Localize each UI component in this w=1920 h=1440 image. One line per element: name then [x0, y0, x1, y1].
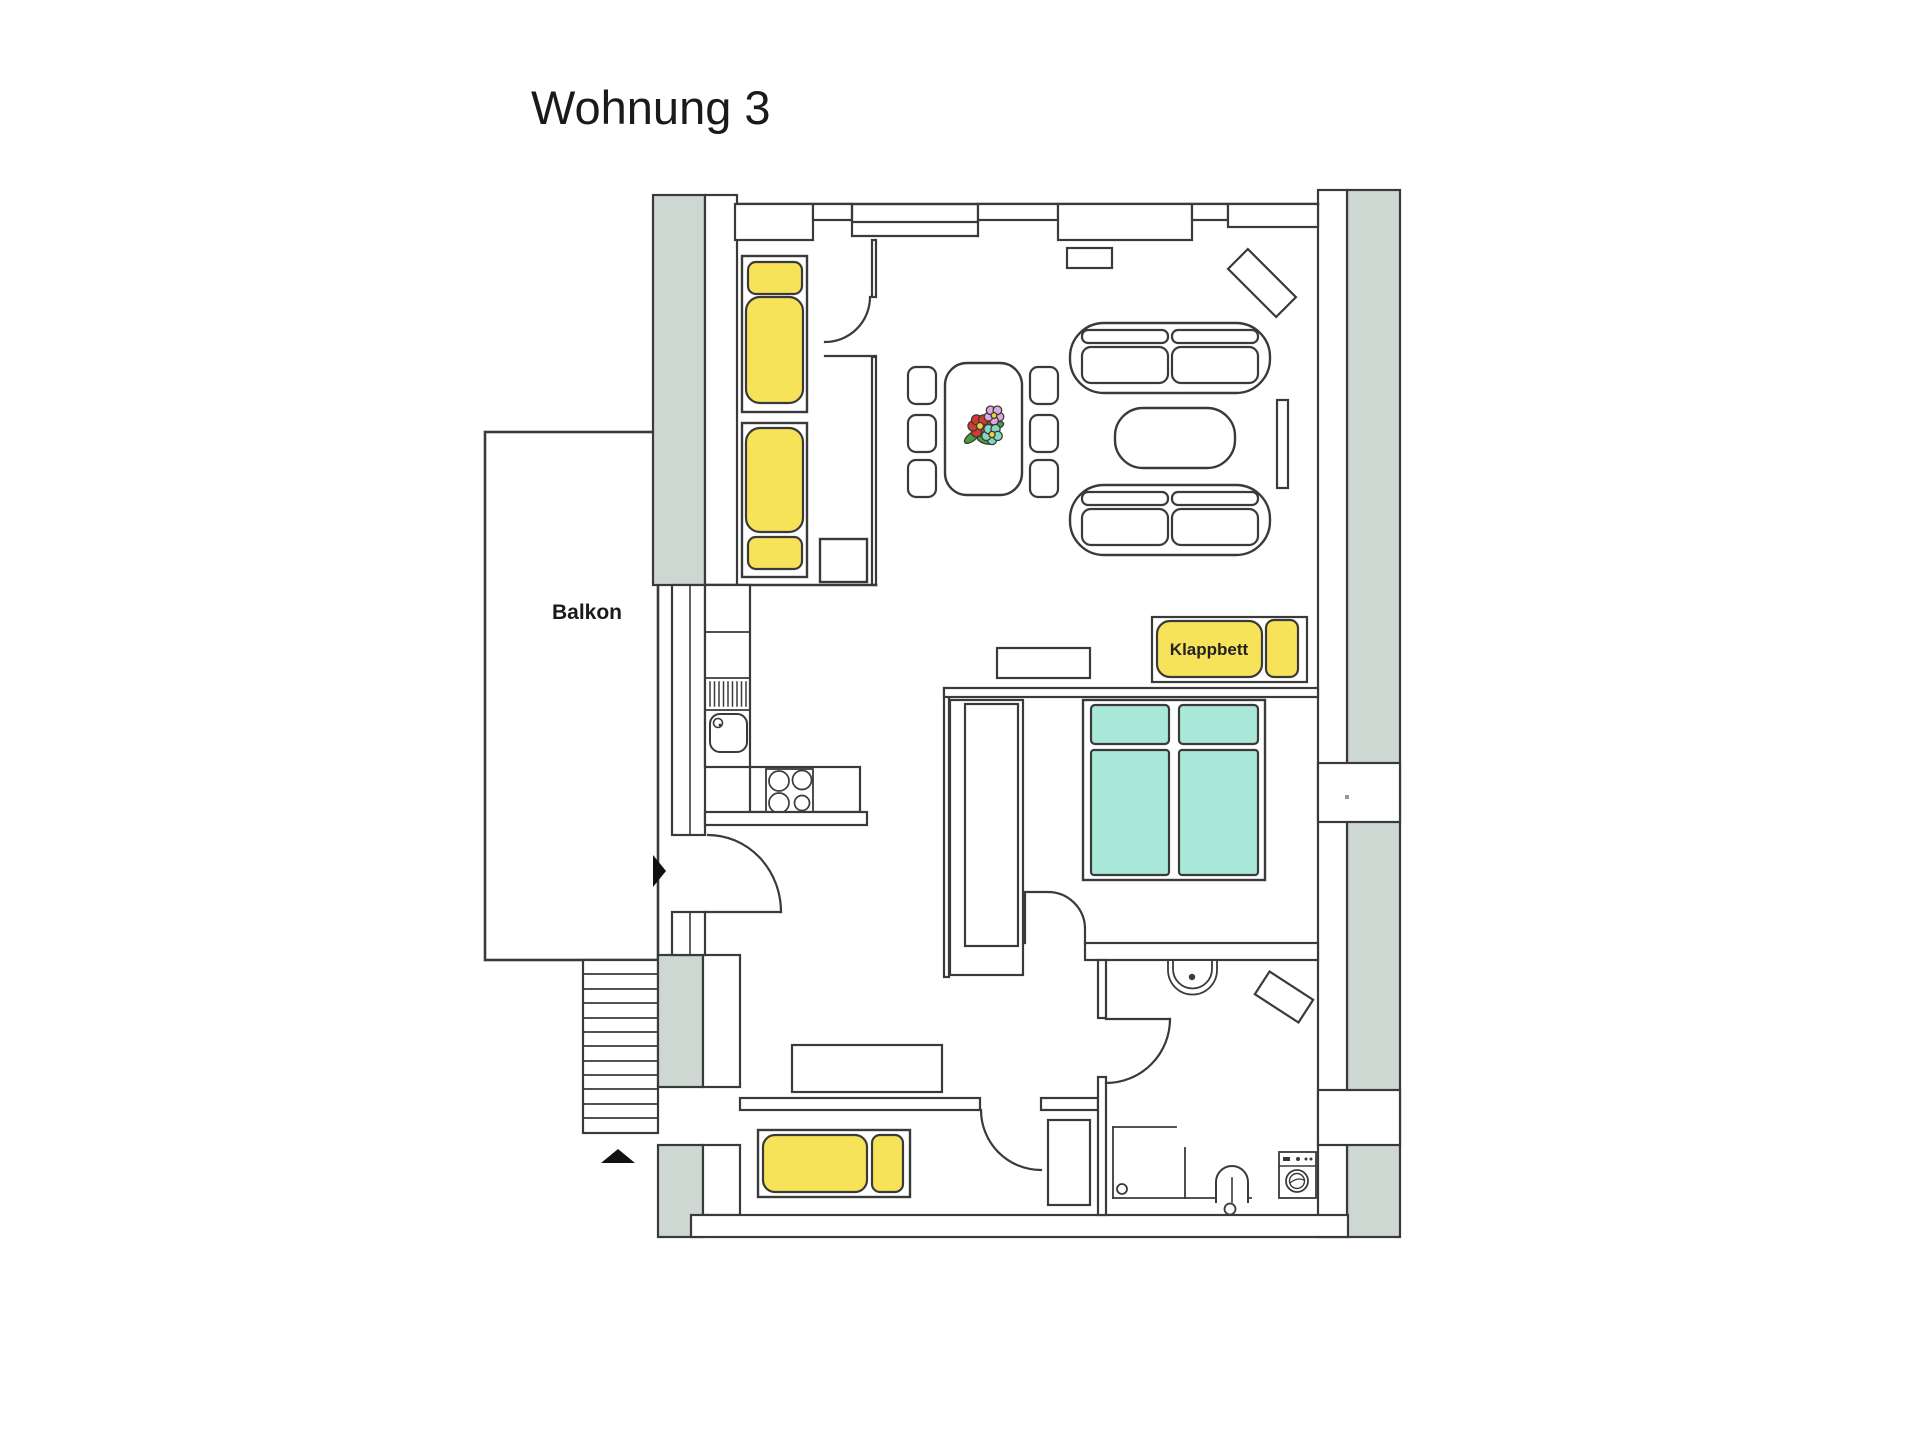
balcony-outline: [485, 432, 658, 960]
alcove-divider-wall: [872, 357, 876, 585]
page-title-group: Wohnung 3: [531, 81, 771, 134]
top-wall-pier: [735, 204, 813, 240]
kitchen: [705, 585, 867, 825]
faucet-icon: [714, 719, 723, 728]
tv-board: [1277, 400, 1288, 488]
floorplan-canvas: Wohnung 3 Balkon: [0, 0, 1920, 1440]
kitchen-front-wall: [705, 812, 867, 825]
top-wall: [735, 204, 1318, 240]
bedroom-left-wall: [944, 688, 949, 977]
sofa-top: [1070, 323, 1270, 393]
balcony-door-arc: [708, 835, 781, 912]
alcove-divider-wall: [872, 240, 876, 297]
bath-shelf-rotated: [1255, 972, 1313, 1023]
wall-band-left-upper: [653, 195, 705, 585]
wall-inner-left-lower-b: [703, 1145, 740, 1215]
daybed-mattress: [763, 1135, 867, 1192]
wall-inner-left-upper: [705, 195, 737, 585]
wall-inner-left-lower-a: [703, 955, 740, 1087]
hall-sideboard: [792, 1045, 942, 1092]
lower-room-door-arc: [981, 1110, 1041, 1170]
corridor-wall: [1041, 1098, 1098, 1110]
balcony-label: Balkon: [552, 601, 622, 624]
wall-inner-right: [1318, 190, 1347, 1237]
wall-shelf: [1067, 248, 1112, 268]
bathroom-door-arc: [1106, 1019, 1170, 1083]
washing-machine-icon: [1279, 1152, 1316, 1198]
toilet-icon: [1216, 1166, 1248, 1215]
page-title: Wohnung 3: [531, 81, 771, 134]
bathroom-wall: [1098, 960, 1106, 1018]
top-wall-window-jamb: [1192, 204, 1228, 220]
top-wall-pier: [1058, 204, 1192, 240]
alcove-door-arc: [825, 297, 870, 342]
top-wall-window-jamb: [978, 204, 1058, 220]
bed-pillow: [748, 262, 802, 294]
corridor-wall: [740, 1098, 980, 1110]
nightstand: [820, 539, 867, 582]
stairs-up-arrow-icon: [601, 1149, 635, 1163]
wall-band-left-lower-a: [658, 955, 703, 1087]
double-bed-pillow: [1091, 705, 1169, 744]
wall-dot: [1345, 795, 1349, 799]
top-wall-window-jamb: [813, 204, 852, 220]
left-middle-wall: [672, 585, 705, 955]
corner-cabinet-rotated: [1228, 249, 1296, 317]
floor-plan: Balkon: [485, 190, 1400, 1237]
bedroom-bottom-wall: [1085, 943, 1318, 960]
top-window: [852, 204, 978, 236]
wardrobe-inner: [965, 704, 1018, 946]
bedroom-door-arc: [1025, 892, 1085, 943]
washbasin-icon: [1168, 961, 1217, 994]
top-wall-corner: [1228, 204, 1318, 227]
coffee-table: [1115, 408, 1235, 468]
balcony: Balkon: [485, 432, 658, 960]
right-wall-window-recess: [1318, 763, 1400, 822]
balcony-direction-arrow-icon: [653, 855, 666, 887]
bedroom-top-wall: [944, 688, 1318, 697]
bathroom-wall: [1098, 1077, 1106, 1215]
sofa-bottom: [1070, 485, 1270, 555]
bed-mattress: [746, 297, 803, 403]
folding-bed-pillow: [1266, 620, 1298, 677]
bottom-wall: [691, 1215, 1348, 1237]
bed-pillow: [748, 537, 802, 569]
bathroom: [1098, 960, 1316, 1215]
double-bed-mattress: [1091, 750, 1169, 875]
double-bed-mattress: [1179, 750, 1258, 875]
bed-mattress: [746, 428, 803, 532]
double-bed-pillow: [1179, 705, 1258, 744]
living-room: [908, 248, 1296, 555]
wall-band-right: [1347, 190, 1400, 1237]
daybed-pillow: [872, 1135, 903, 1192]
folding-bed-label: Klappbett: [1170, 640, 1249, 659]
sideboard: [997, 648, 1090, 678]
tall-cabinet: [1048, 1120, 1090, 1205]
floorplan-page: Wohnung 3 Balkon: [0, 0, 1920, 1440]
balcony-door: [705, 835, 781, 912]
right-wall-window-recess: [1318, 1090, 1400, 1145]
